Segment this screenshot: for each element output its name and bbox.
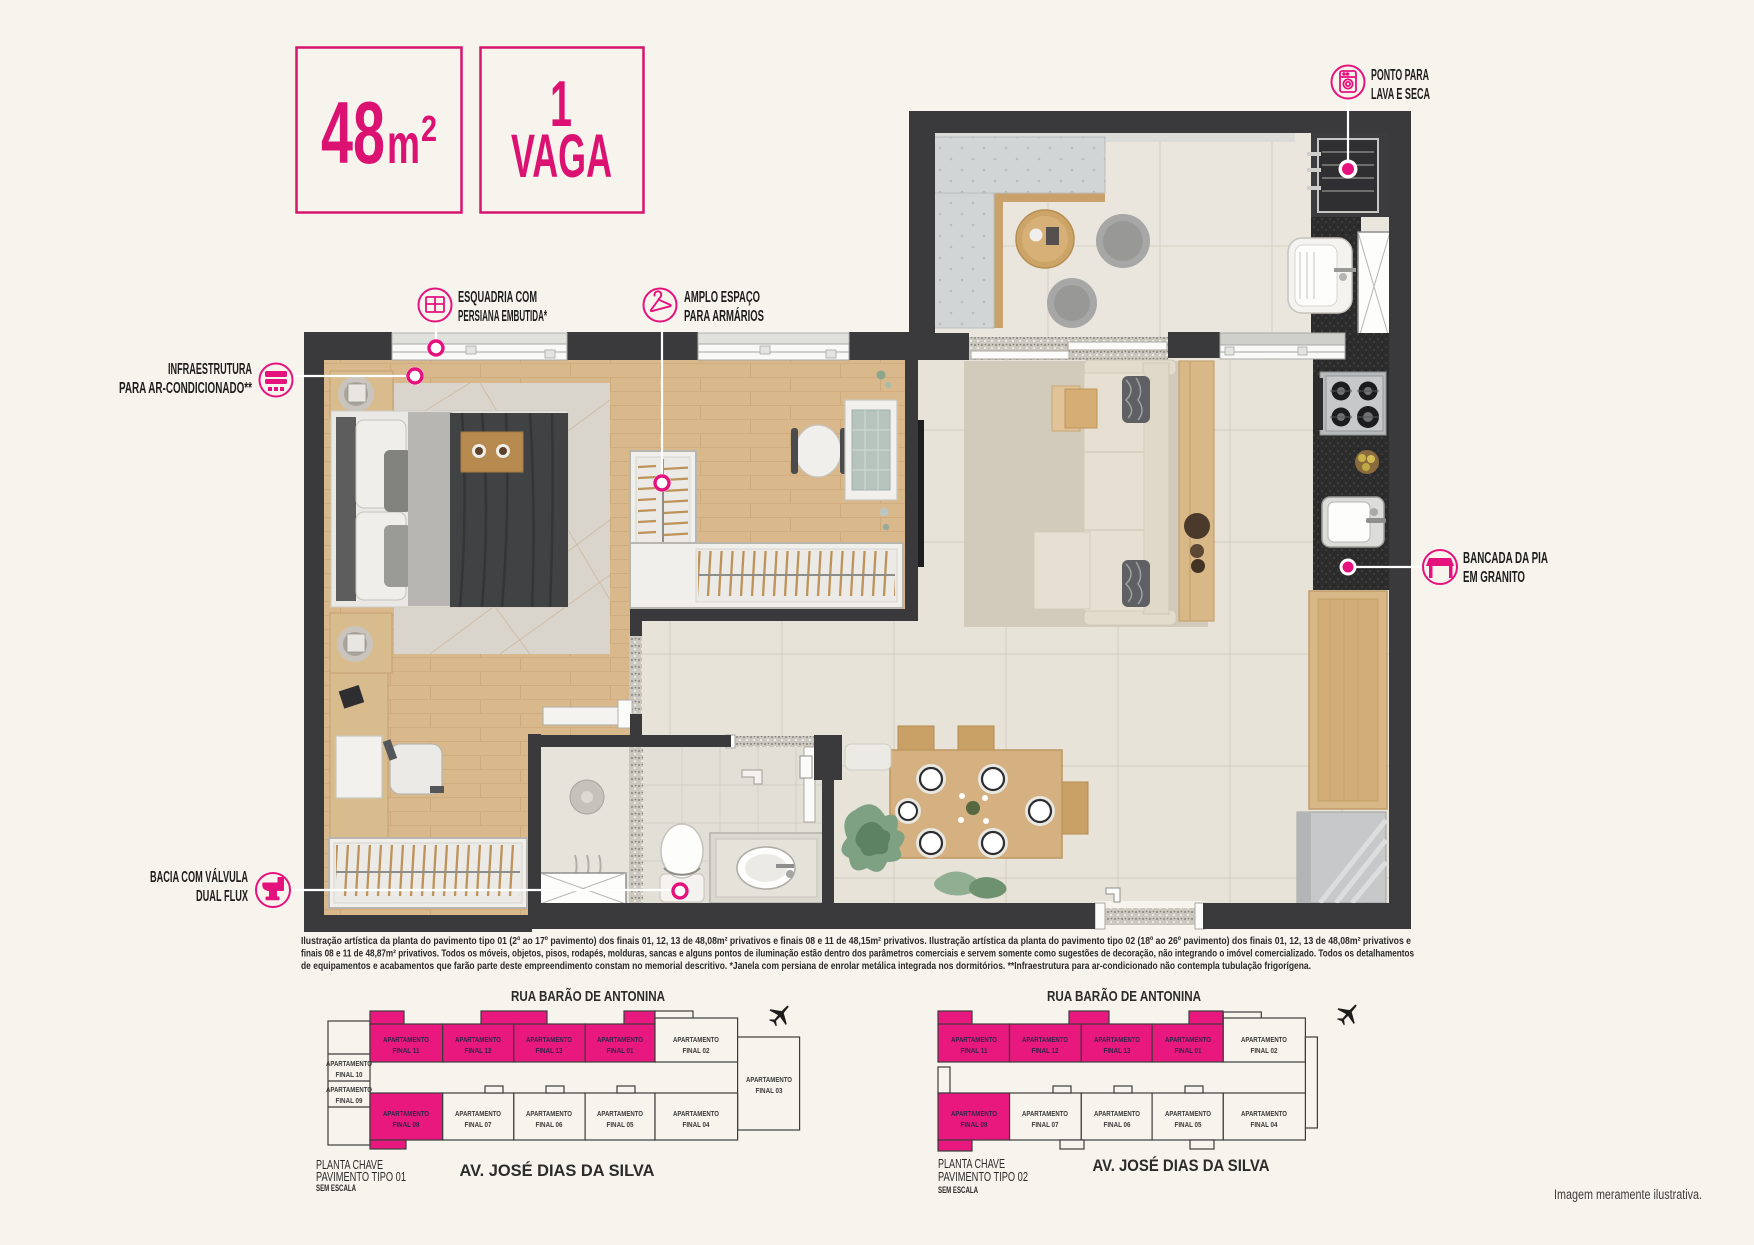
svg-text:Imagem meramente ilustrativa.: Imagem meramente ilustrativa. <box>1554 1187 1702 1202</box>
svg-text:APARTAMENTO: APARTAMENTO <box>526 1035 572 1044</box>
svg-text:ESQUADRIA COM: ESQUADRIA COM <box>458 289 537 306</box>
svg-text:APARTAMENTO: APARTAMENTO <box>673 1035 719 1044</box>
svg-text:RUA BARÃO DE ANTONINA: RUA BARÃO DE ANTONINA <box>1047 987 1201 1005</box>
svg-text:finais 08 e 11 de 48,87m² priv: finais 08 e 11 de 48,87m² privativos. To… <box>301 948 1414 960</box>
svg-text:PERSIANA EMBUTIDA*: PERSIANA EMBUTIDA* <box>458 308 547 325</box>
svg-text:AV. JOSÉ DIAS DA SILVA: AV. JOSÉ DIAS DA SILVA <box>1093 1156 1270 1175</box>
svg-text:m: m <box>387 112 420 175</box>
svg-text:PONTO PARA: PONTO PARA <box>1371 67 1429 84</box>
svg-text:INFRAESTRUTURA: INFRAESTRUTURA <box>168 361 252 378</box>
svg-text:BACIA COM VÁLVULA: BACIA COM VÁLVULA <box>150 867 248 886</box>
svg-text:APARTAMENTO: APARTAMENTO <box>383 1035 429 1044</box>
svg-text:FINAL 06: FINAL 06 <box>1104 1120 1131 1129</box>
svg-text:FINAL 10: FINAL 10 <box>336 1070 363 1079</box>
svg-text:AV. JOSÉ DIAS DA SILVA: AV. JOSÉ DIAS DA SILVA <box>460 1161 655 1180</box>
svg-text:APARTAMENTO: APARTAMENTO <box>1241 1035 1287 1044</box>
svg-text:APARTAMENTO: APARTAMENTO <box>1241 1109 1287 1118</box>
svg-text:APARTAMENTO: APARTAMENTO <box>455 1109 501 1118</box>
svg-text:FINAL 02: FINAL 02 <box>1251 1046 1278 1055</box>
svg-text:APARTAMENTO: APARTAMENTO <box>326 1059 372 1068</box>
svg-text:PARA AR-CONDICIONADO**: PARA AR-CONDICIONADO** <box>119 380 252 397</box>
svg-text:APARTAMENTO: APARTAMENTO <box>1094 1035 1140 1044</box>
svg-text:APARTAMENTO: APARTAMENTO <box>1094 1109 1140 1118</box>
svg-text:BANCADA DA PIA: BANCADA DA PIA <box>1463 550 1548 567</box>
svg-text:APARTAMENTO: APARTAMENTO <box>326 1085 372 1094</box>
svg-text:FINAL 13: FINAL 13 <box>1104 1046 1131 1055</box>
svg-text:APARTAMENTO: APARTAMENTO <box>383 1109 429 1118</box>
svg-text:VAGA: VAGA <box>511 122 612 190</box>
svg-text:FINAL 06: FINAL 06 <box>536 1120 563 1129</box>
svg-text:FINAL 05: FINAL 05 <box>1175 1120 1202 1129</box>
svg-text:APARTAMENTO: APARTAMENTO <box>951 1035 997 1044</box>
svg-text:FINAL 12: FINAL 12 <box>465 1046 492 1055</box>
svg-text:APARTAMENTO: APARTAMENTO <box>455 1035 501 1044</box>
svg-text:AMPLO ESPAÇO: AMPLO ESPAÇO <box>684 289 760 306</box>
svg-text:APARTAMENTO: APARTAMENTO <box>597 1109 643 1118</box>
svg-text:FINAL 09: FINAL 09 <box>336 1096 363 1105</box>
svg-text:APARTAMENTO: APARTAMENTO <box>1022 1109 1068 1118</box>
svg-text:FINAL 07: FINAL 07 <box>465 1120 492 1129</box>
svg-text:2: 2 <box>421 108 437 149</box>
svg-text:FINAL 11: FINAL 11 <box>961 1046 988 1055</box>
svg-text:PAVIMENTO TIPO 02: PAVIMENTO TIPO 02 <box>938 1169 1028 1184</box>
svg-text:APARTAMENTO: APARTAMENTO <box>746 1075 792 1084</box>
svg-text:FINAL 02: FINAL 02 <box>683 1046 710 1055</box>
svg-text:LAVA E SECA: LAVA E SECA <box>1371 86 1430 103</box>
svg-text:FINAL 01: FINAL 01 <box>1175 1046 1202 1055</box>
svg-text:FINAL 04: FINAL 04 <box>683 1120 711 1129</box>
svg-text:FINAL 08: FINAL 08 <box>961 1120 988 1129</box>
svg-text:APARTAMENTO: APARTAMENTO <box>673 1109 719 1118</box>
svg-text:de equipamentos e acabamentos: de equipamentos e acabamentos que farão … <box>301 960 1311 972</box>
svg-text:APARTAMENTO: APARTAMENTO <box>951 1109 997 1118</box>
svg-text:APARTAMENTO: APARTAMENTO <box>1022 1035 1068 1044</box>
svg-text:RUA BARÃO DE ANTONINA: RUA BARÃO DE ANTONINA <box>511 987 665 1005</box>
svg-text:APARTAMENTO: APARTAMENTO <box>597 1035 643 1044</box>
svg-text:APARTAMENTO: APARTAMENTO <box>1165 1109 1211 1118</box>
svg-text:Ilustração artística da planta: Ilustração artística da planta do pavime… <box>301 935 1411 947</box>
svg-text:FINAL 05: FINAL 05 <box>607 1120 634 1129</box>
svg-text:APARTAMENTO: APARTAMENTO <box>526 1109 572 1118</box>
svg-text:SEM ESCALA: SEM ESCALA <box>316 1183 356 1193</box>
svg-text:FINAL 11: FINAL 11 <box>393 1046 420 1055</box>
svg-text:APARTAMENTO: APARTAMENTO <box>1165 1035 1211 1044</box>
svg-text:PARA ARMÁRIOS: PARA ARMÁRIOS <box>684 306 764 325</box>
svg-text:FINAL 03: FINAL 03 <box>756 1086 783 1095</box>
svg-text:PAVIMENTO TIPO 01: PAVIMENTO TIPO 01 <box>316 1169 406 1184</box>
svg-text:EM GRANITO: EM GRANITO <box>1463 569 1525 586</box>
svg-text:FINAL 08: FINAL 08 <box>393 1120 420 1129</box>
svg-text:FINAL 12: FINAL 12 <box>1032 1046 1059 1055</box>
svg-text:SEM ESCALA: SEM ESCALA <box>938 1185 978 1195</box>
svg-text:FINAL 01: FINAL 01 <box>607 1046 634 1055</box>
svg-text:FINAL 13: FINAL 13 <box>536 1046 563 1055</box>
svg-text:48: 48 <box>321 83 385 182</box>
svg-text:FINAL 07: FINAL 07 <box>1032 1120 1059 1129</box>
svg-text:DUAL FLUX: DUAL FLUX <box>196 888 248 905</box>
svg-text:FINAL 04: FINAL 04 <box>1251 1120 1279 1129</box>
